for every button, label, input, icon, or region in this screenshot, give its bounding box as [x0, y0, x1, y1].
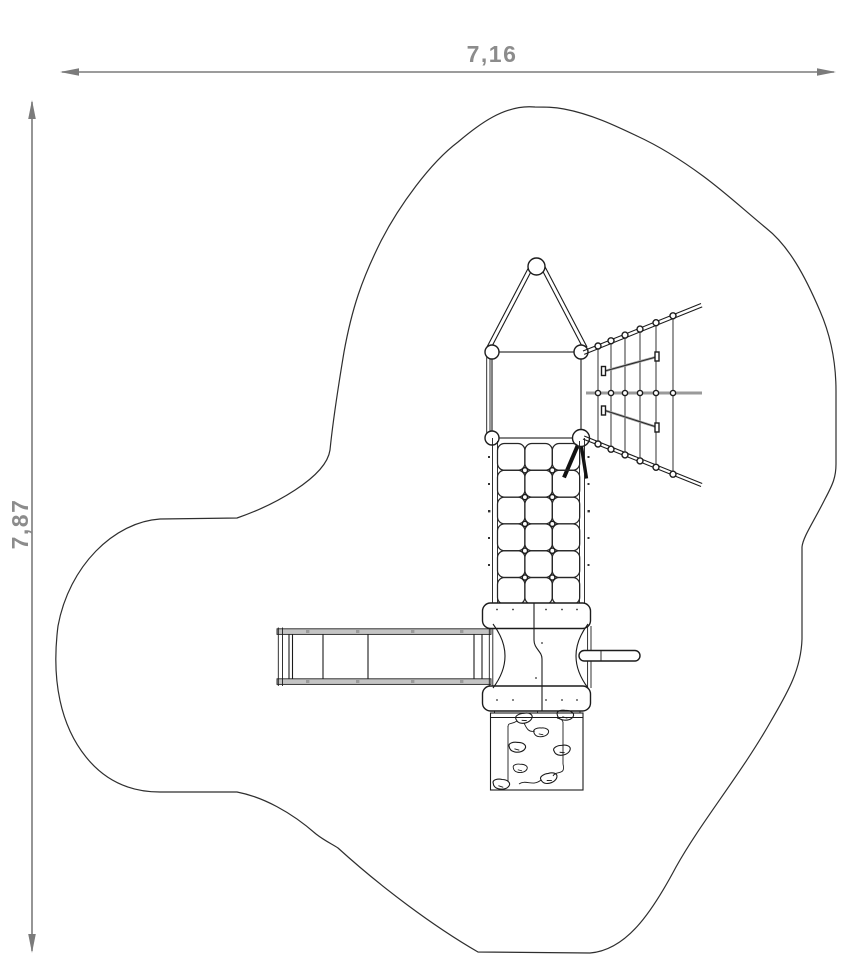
plan-view-canvas: 7,16 7,87	[0, 0, 858, 966]
tower-post-bottom-left	[485, 431, 499, 445]
rail-dot	[588, 564, 590, 566]
rail-dot	[588, 483, 590, 485]
net-knot	[670, 471, 676, 477]
rail-dot	[488, 483, 490, 485]
rail-dot	[488, 510, 490, 512]
slide-tick	[411, 630, 414, 633]
screw-dot	[535, 677, 537, 679]
technical-drawing: 7,16 7,87	[0, 0, 858, 966]
slide-tick	[356, 630, 359, 633]
slide-tick	[306, 680, 309, 683]
net-knot	[608, 338, 614, 344]
net-knot	[653, 464, 659, 470]
safety-zone-outline	[56, 107, 836, 953]
rail-dot	[588, 510, 590, 512]
slide-tick	[306, 630, 309, 633]
slide-tick	[356, 680, 359, 683]
handrail-bar	[579, 651, 640, 662]
net-knot	[670, 313, 676, 319]
tower-post-top-left	[485, 345, 499, 359]
platform-plate-bottom	[483, 686, 591, 711]
net-knot	[670, 390, 675, 395]
net-knot	[595, 343, 601, 349]
slide-tick	[460, 680, 463, 683]
rail-dot	[488, 456, 490, 458]
net-knot	[622, 390, 627, 395]
grid-knot	[522, 548, 527, 553]
grid-knot	[522, 521, 527, 526]
tower-post-top-right	[574, 345, 588, 359]
screw-dot	[545, 609, 547, 611]
height-dimension-label: 7,87	[7, 499, 33, 550]
height-dimension: 7,87	[7, 100, 36, 953]
grid-knot	[550, 495, 555, 500]
net-knot	[653, 320, 659, 326]
net-knot	[595, 441, 601, 447]
net-knot	[653, 390, 658, 395]
width-dimension: 7,16	[60, 41, 836, 76]
roof-apex-post	[528, 258, 545, 275]
net-knot	[637, 326, 643, 332]
grid-knot	[550, 468, 555, 473]
net-knot	[622, 452, 628, 458]
grid-knot	[522, 468, 527, 473]
screw-dot	[576, 699, 578, 701]
screw-dot	[512, 699, 514, 701]
grid-knot	[550, 548, 555, 553]
platform-plate-top	[483, 603, 591, 629]
screw-dot	[541, 642, 543, 644]
grid-knot	[550, 521, 555, 526]
screw-dot	[576, 609, 578, 611]
handrail-capsule	[579, 651, 640, 662]
net-knot	[637, 458, 643, 464]
rail-dot	[488, 537, 490, 539]
net-knot	[637, 390, 642, 395]
screw-dot	[512, 609, 514, 611]
rail-dot	[588, 537, 590, 539]
width-arrow-right-icon	[817, 68, 836, 76]
screw-dot	[561, 609, 563, 611]
screw-dot	[545, 699, 547, 701]
grid-knot	[522, 575, 527, 580]
grid-knot	[522, 495, 527, 500]
rail-dot	[588, 456, 590, 458]
screw-dot	[561, 699, 563, 701]
height-arrow-bottom-icon	[28, 934, 36, 953]
net-knot	[608, 390, 613, 395]
screw-dot	[496, 609, 498, 611]
net-knot	[608, 446, 614, 452]
height-arrow-top-icon	[28, 100, 36, 119]
width-dimension-label: 7,16	[467, 41, 518, 67]
screw-dot	[496, 699, 498, 701]
slide-tick	[460, 630, 463, 633]
rail-dot	[488, 564, 490, 566]
width-arrow-left-icon	[60, 68, 79, 76]
slide-tick	[411, 680, 414, 683]
grid-knot	[550, 575, 555, 580]
net-knot	[595, 390, 600, 395]
net-knot	[622, 332, 628, 338]
